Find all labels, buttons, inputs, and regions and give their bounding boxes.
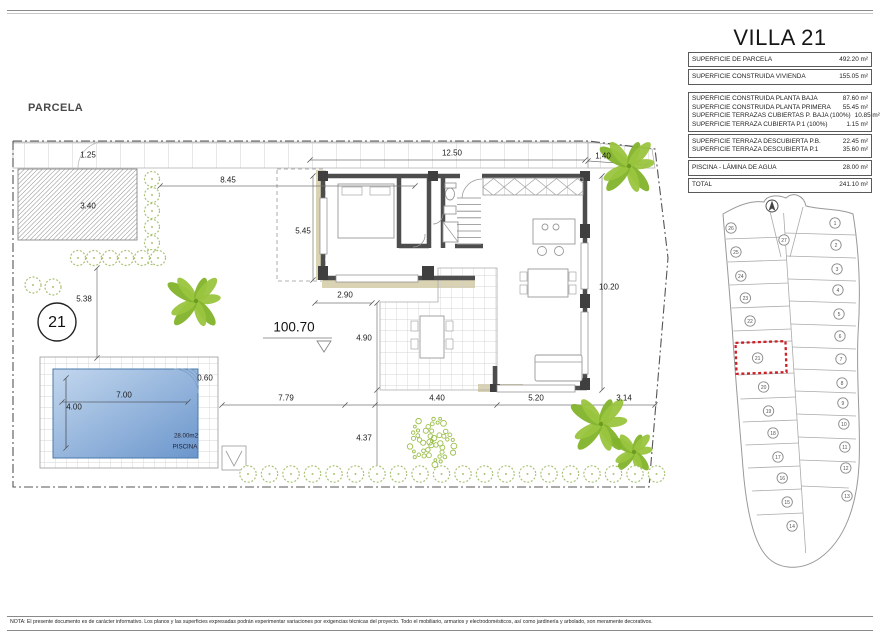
- areas-table-row: SUPERFICIE TERRAZA CUBIERTA P.1 (100%)1.…: [692, 121, 868, 129]
- svg-text:11: 11: [842, 445, 847, 451]
- svg-text:8: 8: [841, 381, 844, 387]
- map-plot: 25: [731, 247, 741, 257]
- bush: [119, 251, 134, 266]
- bush: [135, 251, 150, 266]
- bush: [476, 466, 492, 482]
- area-value: 35.60 m²: [843, 146, 868, 154]
- bush: [326, 466, 342, 482]
- bush: [390, 466, 406, 482]
- areas-table: SUPERFICIE DE PARCELA492.20 m²SUPERFICIE…: [688, 52, 872, 193]
- svg-text:24: 24: [738, 274, 744, 280]
- svg-text:17: 17: [775, 455, 781, 461]
- bush: [261, 466, 277, 482]
- map-plot: 22: [745, 316, 755, 326]
- svg-text:25: 25: [733, 250, 739, 256]
- map-plot: 18: [768, 428, 778, 438]
- parcela-label: PARCELA: [28, 102, 83, 114]
- area-label: SUPERFICIE TERRAZA DESCUBIERTA P.1: [692, 146, 822, 154]
- map-plot: 26: [726, 223, 736, 233]
- svg-text:4: 4: [837, 288, 840, 294]
- map-plot-highlighted: 21: [752, 353, 762, 363]
- bush: [433, 466, 449, 482]
- area-label: SUPERFICIE TERRAZA DESCUBIERTA P.B.: [692, 138, 825, 146]
- svg-text:3: 3: [836, 267, 839, 273]
- area-value: 155.05 m²: [839, 73, 868, 81]
- bush: [605, 466, 621, 482]
- bush: [498, 466, 514, 482]
- outdoor-table: [420, 316, 444, 358]
- areas-table-row: TOTAL241.10 m²: [692, 181, 868, 189]
- map-plot: 13: [842, 491, 852, 501]
- area-value: 28.00 m²: [843, 164, 868, 172]
- area-label: SUPERFICIE TERRAZA CUBIERTA P.1 (100%): [692, 121, 832, 129]
- bush: [103, 251, 118, 266]
- stool: [555, 247, 564, 256]
- bush: [145, 204, 160, 219]
- bush: [45, 279, 61, 295]
- svg-text:19: 19: [766, 409, 772, 415]
- map-plot: 2: [831, 240, 841, 250]
- map-plot: 27: [779, 235, 789, 245]
- bush: [584, 466, 600, 482]
- bush: [25, 277, 41, 293]
- svg-text:2: 2: [835, 243, 838, 249]
- bush: [87, 251, 102, 266]
- areas-table-group: SUPERFICIE DE PARCELA492.20 m²: [688, 52, 872, 67]
- svg-text:27: 27: [781, 238, 787, 244]
- map-plot: 10: [839, 419, 849, 429]
- areas-table-group: TOTAL241.10 m²: [688, 178, 872, 193]
- map-plot: 12: [841, 463, 851, 473]
- stool: [538, 247, 547, 256]
- map-plot: 15: [782, 497, 792, 507]
- map-plot: 16: [777, 473, 787, 483]
- area-value: 1.15 m²: [846, 121, 868, 129]
- svg-text:14: 14: [789, 524, 795, 530]
- svg-text:9: 9: [842, 401, 845, 407]
- area-value: 492.20 m²: [839, 56, 868, 64]
- area-value: 22.45 m²: [843, 138, 868, 146]
- bush: [648, 466, 664, 482]
- bush: [145, 236, 160, 251]
- bush: [541, 466, 557, 482]
- map-plot: 17: [773, 452, 783, 462]
- svg-text:23: 23: [743, 296, 749, 302]
- area-label: TOTAL: [692, 181, 716, 189]
- bush: [145, 172, 160, 187]
- bush: [347, 466, 363, 482]
- area-label: PISCINA - LÁMINA DE AGUA: [692, 164, 781, 172]
- areas-table-group: SUPERFICIE CONSTRUIDA PLANTA BAJA87.60 m…: [688, 92, 872, 133]
- svg-text:21: 21: [755, 356, 761, 362]
- areas-table-row: SUPERFICIE TERRAZAS CUBIERTAS P. BAJA (1…: [692, 112, 868, 120]
- svg-text:22: 22: [747, 319, 753, 325]
- map-plot: 23: [740, 293, 750, 303]
- dining-table: [528, 269, 568, 297]
- map-plot: 9: [838, 398, 848, 408]
- map-plot: 5: [834, 309, 844, 319]
- bush: [562, 466, 578, 482]
- area-label: SUPERFICIE TERRAZAS CUBIERTAS P. BAJA (1…: [692, 112, 855, 120]
- shrub-cluster: [407, 417, 457, 467]
- driveway-paving: [18, 169, 137, 240]
- bush: [145, 220, 160, 235]
- areas-table-row: PISCINA - LÁMINA DE AGUA28.00 m²: [692, 164, 868, 172]
- bush: [71, 251, 86, 266]
- svg-text:1: 1: [834, 221, 837, 227]
- bush: [304, 466, 320, 482]
- bush: [151, 251, 166, 266]
- map-plot: 20: [758, 382, 768, 392]
- areas-table-row: SUPERFICIE CONSTRUIDA PLANTA PRIMERA55.4…: [692, 104, 868, 112]
- areas-table-group: SUPERFICIE CONSTRUIDA VIVIENDA155.05 m²: [688, 69, 872, 84]
- svg-text:13: 13: [844, 494, 850, 500]
- level-marker-icon: [317, 341, 331, 352]
- areas-table-row: SUPERFICIE CONSTRUIDA PLANTA BAJA87.60 m…: [692, 95, 868, 103]
- location-map: 2625242322212019181716151412345678910111…: [723, 195, 859, 568]
- sofa: [535, 355, 582, 381]
- bush: [519, 466, 535, 482]
- kitchen-island: [533, 219, 575, 244]
- areas-table-row: SUPERFICIE DE PARCELA492.20 m²: [692, 56, 868, 64]
- svg-text:7: 7: [840, 357, 843, 363]
- bush: [283, 466, 299, 482]
- palm-tree: [165, 275, 222, 329]
- map-plot: 14: [787, 521, 797, 531]
- sink: [444, 206, 456, 214]
- map-plot: 7: [836, 354, 846, 364]
- area-label: SUPERFICIE CONSTRUIDA VIVIENDA: [692, 73, 810, 81]
- areas-table-row: SUPERFICIE CONSTRUIDA VIVIENDA155.05 m²: [692, 73, 868, 81]
- page-title: VILLA 21: [688, 25, 872, 51]
- area-label: SUPERFICIE CONSTRUIDA PLANTA PRIMERA: [692, 104, 835, 112]
- map-plot: 6: [835, 331, 845, 341]
- bush: [240, 466, 256, 482]
- plot-number-circle: [38, 303, 76, 341]
- area-value: 241.10 m²: [839, 181, 868, 189]
- svg-text:12: 12: [843, 466, 849, 472]
- map-plot: 8: [837, 378, 847, 388]
- area-value: 87.60 m²: [843, 95, 868, 103]
- pool-area: [40, 357, 246, 470]
- map-plot: 4: [833, 285, 843, 295]
- svg-text:26: 26: [728, 226, 734, 232]
- svg-text:16: 16: [779, 476, 785, 482]
- staircase: [457, 198, 481, 244]
- bush: [412, 466, 428, 482]
- area-label: SUPERFICIE DE PARCELA: [692, 56, 776, 64]
- areas-table-row: SUPERFICIE TERRAZA DESCUBIERTA P.B.22.45…: [692, 138, 868, 146]
- map-plot: 11: [840, 442, 850, 452]
- svg-text:10: 10: [841, 422, 847, 428]
- toilet: [446, 188, 455, 200]
- swimming-pool: [53, 369, 198, 458]
- svg-text:6: 6: [839, 334, 842, 340]
- svg-text:18: 18: [770, 431, 776, 437]
- areas-table-group: PISCINA - LÁMINA DE AGUA28.00 m²: [688, 160, 872, 175]
- bush: [455, 466, 471, 482]
- map-plot: 24: [736, 271, 746, 281]
- area-value: 10.85 m²: [855, 112, 880, 120]
- svg-text:20: 20: [761, 385, 767, 391]
- areas-table-group: SUPERFICIE TERRAZA DESCUBIERTA P.B.22.45…: [688, 134, 872, 158]
- svg-text:5: 5: [838, 312, 841, 318]
- map-plot: 1: [830, 218, 840, 228]
- bush: [145, 188, 160, 203]
- sidewalk-strip: [13, 142, 588, 168]
- kitchen-cabinets: [483, 178, 583, 195]
- bush: [627, 466, 643, 482]
- area-label: SUPERFICIE CONSTRUIDA PLANTA BAJA: [692, 95, 822, 103]
- note: NOTA: El presente documento es de caráct…: [10, 619, 870, 625]
- areas-table-row: SUPERFICIE TERRAZA DESCUBIERTA P.135.60 …: [692, 146, 868, 154]
- map-plot: 19: [763, 406, 773, 416]
- bush: [369, 466, 385, 482]
- house: [316, 170, 590, 392]
- area-value: 55.45 m²: [843, 104, 868, 112]
- svg-text:15: 15: [784, 500, 790, 506]
- map-plot: 3: [832, 264, 842, 274]
- floor-plan-sheet: 2625242322212019181716151412345678910111…: [0, 0, 880, 640]
